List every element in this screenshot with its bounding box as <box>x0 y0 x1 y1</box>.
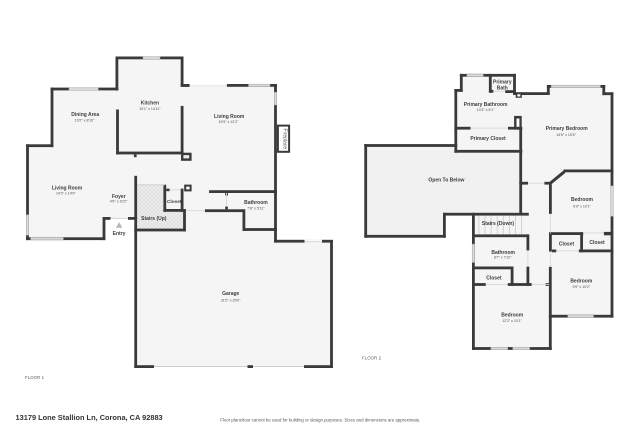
svg-text:Primary Bedroom: Primary Bedroom <box>546 126 589 132</box>
svg-text:9'9" x 10'2": 9'9" x 10'2" <box>572 285 590 289</box>
svg-text:Open To Below: Open To Below <box>428 178 464 184</box>
svg-text:9'9" x 10'1": 9'9" x 10'1" <box>573 205 591 209</box>
svg-text:10'2" x 8'10": 10'2" x 8'10" <box>75 118 95 122</box>
svg-text:Living Room: Living Room <box>214 114 245 120</box>
svg-text:13179 Lone Stallion Ln, Corona: 13179 Lone Stallion Ln, Corona, CA 92883 <box>16 413 163 422</box>
svg-text:Bedroom: Bedroom <box>571 197 594 203</box>
svg-text:Kitchen: Kitchen <box>141 101 159 107</box>
svg-text:Bath: Bath <box>497 85 508 91</box>
svg-text:Stairs (Down): Stairs (Down) <box>482 221 515 227</box>
svg-text:10'3" x 8'1": 10'3" x 8'1" <box>477 108 495 112</box>
svg-text:FLOOR 1: FLOOR 1 <box>25 375 45 380</box>
svg-text:Garage: Garage <box>222 291 239 297</box>
svg-text:Closet: Closet <box>167 199 182 204</box>
svg-text:Closet: Closet <box>559 241 575 247</box>
svg-text:Bedroom: Bedroom <box>570 279 593 285</box>
svg-text:Entry: Entry <box>113 231 126 237</box>
svg-text:8'7" x 7'10": 8'7" x 7'10" <box>494 255 512 259</box>
svg-text:Closet: Closet <box>486 275 502 281</box>
svg-text:Fireplace: Fireplace <box>282 129 288 150</box>
svg-text:10'1" x 14'11": 10'1" x 14'11" <box>139 107 161 111</box>
svg-text:12'2" x 10'1": 12'2" x 10'1" <box>502 319 522 323</box>
svg-text:7'8" x 5'11": 7'8" x 5'11" <box>247 206 265 210</box>
svg-text:Bedroom: Bedroom <box>501 313 524 319</box>
svg-text:Primary Bathroom: Primary Bathroom <box>464 102 508 108</box>
svg-text:14'3" x 14'9": 14'3" x 14'9" <box>56 192 76 196</box>
svg-text:Primary Closet: Primary Closet <box>470 136 506 142</box>
svg-text:FLOOR 2: FLOOR 2 <box>362 356 382 361</box>
svg-text:Bathroom: Bathroom <box>244 200 268 206</box>
svg-text:4'9" x 10'2": 4'9" x 10'2" <box>110 199 128 203</box>
svg-text:Living Room: Living Room <box>52 185 83 191</box>
svg-text:Stairs (Up): Stairs (Up) <box>141 216 167 222</box>
svg-text:14'6" x 15'5": 14'6" x 15'5" <box>556 133 576 137</box>
svg-text:Dining Area: Dining Area <box>71 112 99 118</box>
svg-text:31'5" x 25'0": 31'5" x 25'0" <box>221 298 241 302</box>
svg-text:Closet: Closet <box>589 240 605 246</box>
svg-text:Floor plans/tour cannot be use: Floor plans/tour cannot be used for buil… <box>220 418 420 423</box>
svg-text:15'9" x 12'2": 15'9" x 12'2" <box>219 120 239 124</box>
